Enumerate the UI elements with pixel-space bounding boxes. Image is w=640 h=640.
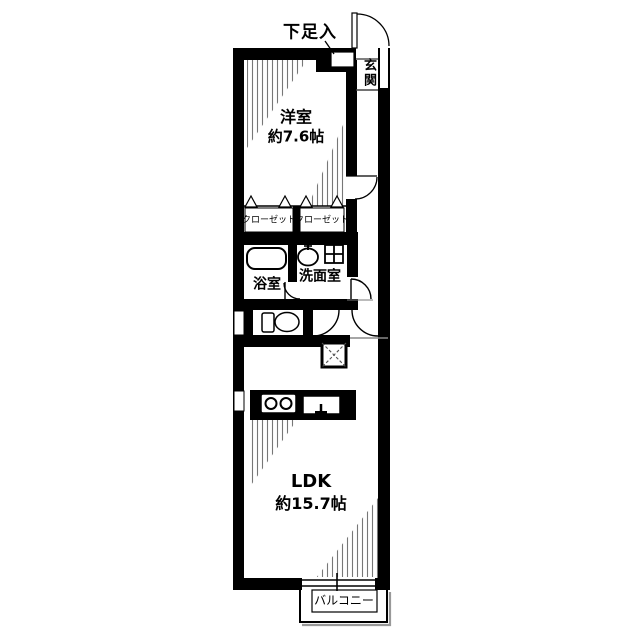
entrance-door-icon [352,13,389,59]
western-room-label: 洋室 約7.6帖 [268,108,325,147]
floor-plan: 下足入 玄関 洋室 約7.6帖 クローゼット クローゼット 浴室 洗面室 LDK… [0,0,640,640]
wall-bottom-left [233,578,302,590]
floor-plan-drawing [0,0,640,640]
washroom-door-icon [347,279,373,300]
western-room-door-icon [346,176,377,199]
wall-right [378,88,390,590]
shoe-cabinet-icon [331,52,354,67]
wall-entry-frame-outer [388,48,390,88]
wall-closet-bottom [233,232,358,245]
wall-washroom-corridor [347,245,358,277]
bath-label: 浴室 [253,276,281,294]
wall-corridor-upper [346,60,357,176]
window-toilet [234,311,244,335]
wall-toilet-left [244,308,253,336]
balcony-label: バルコニー [314,594,374,609]
toilet-door-icon [313,310,339,336]
washbasin-icon [298,243,318,266]
ldk-size: 約15.7帖 [275,493,346,513]
bath-door-icon [284,282,300,299]
closet-left-label: クローゼット [242,215,296,226]
pipe-shaft-icon [322,343,346,367]
bathtub-icon [247,248,286,269]
ldk-label: LDK 約15.7帖 [275,471,346,514]
washing-machine-icon [325,245,343,263]
shoe-storage-label: 下足入 [283,22,337,43]
window-kitchen [234,391,244,411]
wall-entry-frame-inner [378,48,380,88]
wall-bottom-right [375,578,390,590]
stove-icon [261,394,296,413]
western-room-name: 洋室 [268,108,325,128]
closet-right-label: クローゼット [295,215,349,226]
washroom-label: 洗面室 [299,268,341,286]
western-room-size: 約7.6帖 [268,128,325,147]
toilet-icon [262,313,299,333]
wall-toilet-right [303,308,313,336]
entrance-label: 玄関 [359,58,378,88]
kitchen-sink-icon [303,396,340,415]
kitchen-counter [250,390,356,420]
wall-bath-divider [288,245,297,282]
ldk-name: LDK [275,471,346,494]
